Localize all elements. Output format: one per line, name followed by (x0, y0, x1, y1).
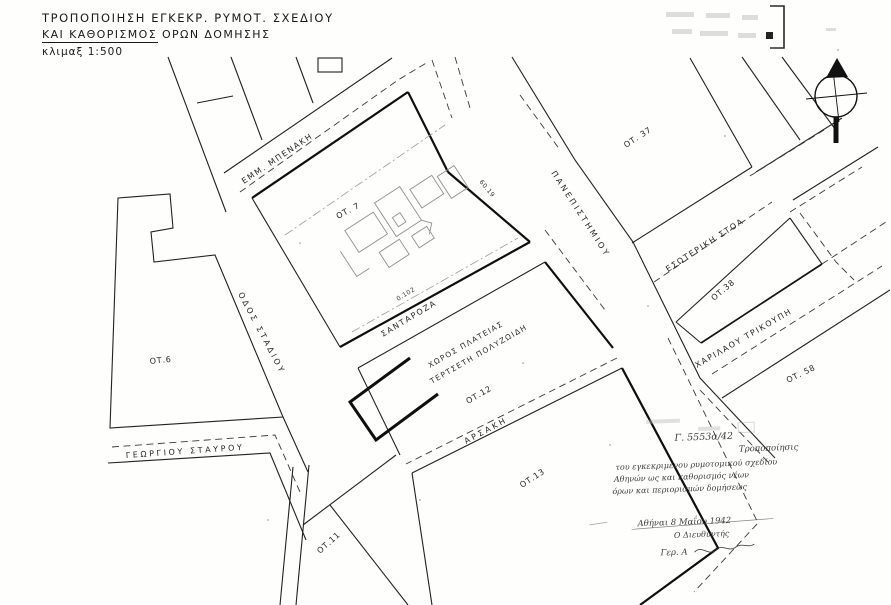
handwriting-signature: Γερ. Α (659, 547, 687, 558)
street-label-esoteriki-stoa: ΕΣΩΤΕΡΙΚΗ ΣΤΟΑ (664, 216, 745, 273)
title-line1: ΤΡΟΠΟΠΟΙΗΣΗ ΕΓΚΕΚΡ. ΡΥΜΟΤ. ΣΧΕΔΙΟΥ (41, 11, 334, 25)
existing-buildings-ot7 (328, 156, 481, 285)
block-label-ot12: ΟΤ.12 (465, 384, 494, 406)
square-labels: ΧΩΡΟΣ ΠΛΑΤΕΙΑΣ ΤΕΡΤΣΕΤΗ ΠΟΛΥΖΩΙΔΗ (427, 319, 529, 386)
north-arrow-icon (806, 58, 867, 143)
street-label-arsaki: ΑΡΣΑΚΗ (463, 415, 509, 445)
signature-squiggle (694, 544, 754, 553)
city-plan-map: ΕΜΜ. ΜΠΕΝΑΚΗ ΟΔΟΣ ΣΤΑΔΙΟΥ ΠΑΝΕΠΙΣΤΗΜΙΟΥ … (0, 0, 891, 605)
stamp (666, 6, 836, 48)
street-label-santaroza: ΣΑΝΤΑΡΟΖΑ (379, 298, 438, 338)
block-label-ot58: ΟΤ. 58 (785, 363, 817, 385)
street-label-stadiou: ΟΔΟΣ ΣΤΑΔΙΟΥ (236, 291, 287, 376)
dimension-labels: 60.19 0.102 (395, 179, 496, 303)
handwriting-decree-number: Γ. 5553α/42 (673, 431, 733, 444)
handwriting-line4: όρων και περιορισμών δομήσεως (612, 482, 748, 496)
block-label-ot6: ΟΤ.6 (149, 355, 172, 366)
handwriting-line1: Τροποποίησις (739, 442, 799, 455)
plan-sheet: ΕΜΜ. ΜΠΕΝΑΚΗ ΟΔΟΣ ΣΤΑΔΙΟΥ ΠΑΝΕΠΙΣΤΗΜΙΟΥ … (0, 0, 891, 605)
new-alignment-bold-lines (252, 92, 822, 605)
street-label-georgiou-stavrou: ΓΕΩΡΓΙΟΥ ΣΤΑΥΡΟΥ (126, 443, 245, 460)
block-label-ot37: ΟΤ. 37 (622, 125, 653, 150)
dimension-0-102: 0.102 (395, 286, 416, 303)
dimension-60-19: 60.19 (477, 179, 496, 199)
handwriting-dash (589, 522, 607, 525)
handwriting-date: Αθήναι 8 Μαΐου 1942 (636, 513, 731, 529)
block-label-ot38: ΟΤ.38 (710, 278, 737, 303)
stamp-illegible-text (666, 12, 836, 38)
street-lines (108, 57, 890, 605)
block-label-ot13: ΟΤ.13 (518, 467, 546, 490)
title-block: ΤΡΟΠΟΠΟΙΗΣΗ ΕΓΚΕΚΡ. ΡΥΜΟΤ. ΣΧΕΔΙΟΥ ΚΑΙ Κ… (41, 11, 334, 58)
handwritten-annotation: Γ. 5553α/42 Τροποποίησις του εγκεκριμένο… (586, 415, 802, 561)
street-label-emm-benaki: ΕΜΜ. ΜΠΕΝΑΚΗ (240, 131, 315, 185)
handwriting-line3: Αθηνών ως και καθορισμός νέων (613, 470, 750, 484)
title-scale: κλιμαξ 1:500 (42, 46, 123, 58)
block-label-ot11: ΟΤ.11 (315, 530, 342, 555)
title-line2: ΚΑΙ ΚΑΘΟΡΙΣΜΟΣ ΟΡΩΝ ΔΟΜΗΣΗΣ (42, 28, 270, 41)
stamp-bracket (770, 6, 784, 48)
arsakeio-building-outline (350, 358, 438, 440)
street-label-panepistimiou: ΠΑΝΕΠΙΣΤΗΜΙΟΥ (549, 169, 612, 259)
block-label-ot7: ΟΤ. 7 (335, 201, 362, 221)
stamp-mark (766, 32, 773, 39)
handwriting-role: Ο Διευθυντής (674, 529, 730, 540)
handwriting-line2: του εγκεκριμένου ρυμοτομικού σχεδίου (615, 457, 777, 472)
